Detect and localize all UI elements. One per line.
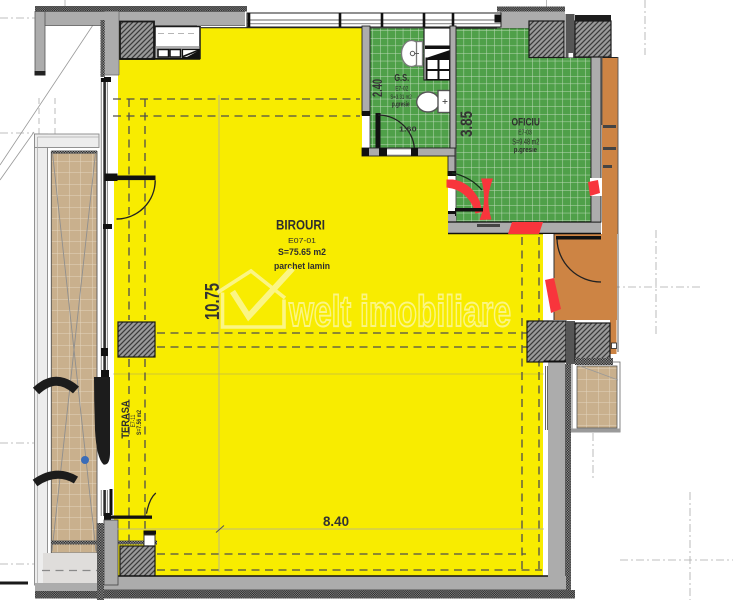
- svg-text:E7-03: E7-03: [518, 130, 532, 137]
- svg-text:2.40: 2.40: [370, 79, 385, 97]
- svg-text:1.60: 1.60: [399, 125, 417, 134]
- svg-text:S=7.56 m2: S=7.56 m2: [136, 410, 143, 435]
- svg-text:p.gresie: p.gresie: [514, 145, 537, 154]
- svg-text:welt imobiliare: welt imobiliare: [288, 287, 511, 336]
- svg-text:OFICIU: OFICIU: [511, 117, 540, 129]
- svg-text:E07-01: E07-01: [288, 236, 316, 245]
- svg-text:3.85: 3.85: [457, 111, 476, 137]
- svg-text:S=75.65 m2: S=75.65 m2: [278, 247, 326, 258]
- svg-text:p.gresie: p.gresie: [392, 100, 410, 109]
- svg-text:8.40: 8.40: [323, 513, 349, 529]
- svg-text:E7-02: E7-02: [395, 86, 408, 93]
- svg-text:G.S.: G.S.: [394, 72, 409, 84]
- svg-text:parchet lamin: parchet lamin: [274, 261, 330, 272]
- svg-text:BIROURI: BIROURI: [276, 217, 325, 233]
